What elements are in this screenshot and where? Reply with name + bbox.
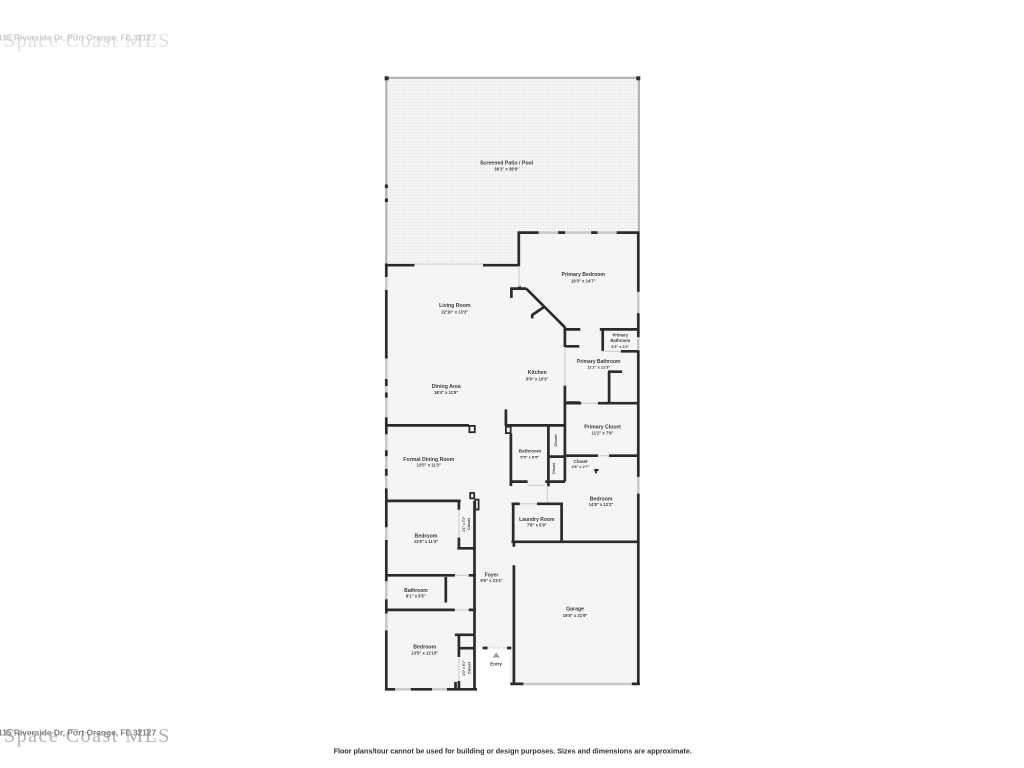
svg-text:19'8" x 21'9": 19'8" x 21'9" — [563, 613, 588, 618]
svg-text:4'8" x 2'7": 4'8" x 2'7" — [571, 465, 589, 469]
svg-text:13'5" x 11'10": 13'5" x 11'10" — [411, 650, 438, 655]
svg-text:Primary Bedroom: Primary Bedroom — [562, 272, 606, 278]
svg-text:11'2" x 7'9": 11'2" x 7'9" — [591, 431, 613, 436]
svg-text:Living Room: Living Room — [439, 303, 471, 309]
svg-text:Closet: Closet — [552, 462, 556, 474]
svg-text:5'3" x 3'2": 5'3" x 3'2" — [611, 345, 629, 349]
svg-text:Floor plans/tour cannot be use: Floor plans/tour cannot be used for buil… — [334, 747, 692, 756]
svg-text:Closet: Closet — [573, 459, 588, 464]
svg-text:Garage: Garage — [566, 607, 584, 613]
svg-text:8'9" x 10'3": 8'9" x 10'3" — [526, 376, 548, 381]
svg-text:13'5" x 11'3": 13'5" x 11'3" — [417, 463, 441, 468]
svg-text:Dining Area: Dining Area — [432, 384, 461, 390]
svg-text:2'1" x 7'3": 2'1" x 7'3" — [462, 516, 466, 532]
svg-text:Closet: Closet — [466, 517, 471, 530]
svg-text:Primary: Primary — [612, 332, 628, 337]
svg-text:Closet: Closet — [553, 434, 558, 447]
svg-text:115 Riverside Dr, Port Orange,: 115 Riverside Dr, Port Orange, FL 32127 — [0, 33, 156, 43]
svg-text:2'4" x 6'1": 2'4" x 6'1" — [462, 660, 466, 676]
svg-text:7'8" x 5'9": 7'8" x 5'9" — [527, 523, 547, 528]
svg-text:22'10" x 13'3": 22'10" x 13'3" — [441, 309, 468, 314]
svg-text:5'5" x 8'5": 5'5" x 8'5" — [520, 454, 539, 459]
svg-text:115 Riverside Dr, Port Orange,: 115 Riverside Dr, Port Orange, FL 32127 — [0, 728, 156, 738]
svg-text:18'4" x 11'9": 18'4" x 11'9" — [434, 390, 458, 395]
svg-text:8'1" x 5'5": 8'1" x 5'5" — [406, 593, 426, 598]
svg-text:Screened Patio / Pool: Screened Patio / Pool — [480, 160, 534, 166]
svg-text:9'6" x 21'4": 9'6" x 21'4" — [480, 578, 502, 583]
svg-text:Bathroom: Bathroom — [610, 338, 630, 343]
svg-text:11'2" x 11'3": 11'2" x 11'3" — [587, 365, 610, 370]
svg-text:13'6" x 11'3": 13'6" x 11'3" — [414, 539, 438, 544]
svg-text:Kitchen: Kitchen — [528, 370, 547, 376]
svg-text:Closet: Closet — [466, 661, 471, 674]
svg-text:14'8" x 12'2": 14'8" x 12'2" — [589, 502, 614, 507]
svg-text:Entry: Entry — [490, 661, 502, 666]
svg-text:16'3" x 14'7": 16'3" x 14'7" — [571, 278, 596, 283]
svg-text:39'1" x 38'9": 39'1" x 38'9" — [494, 166, 519, 171]
